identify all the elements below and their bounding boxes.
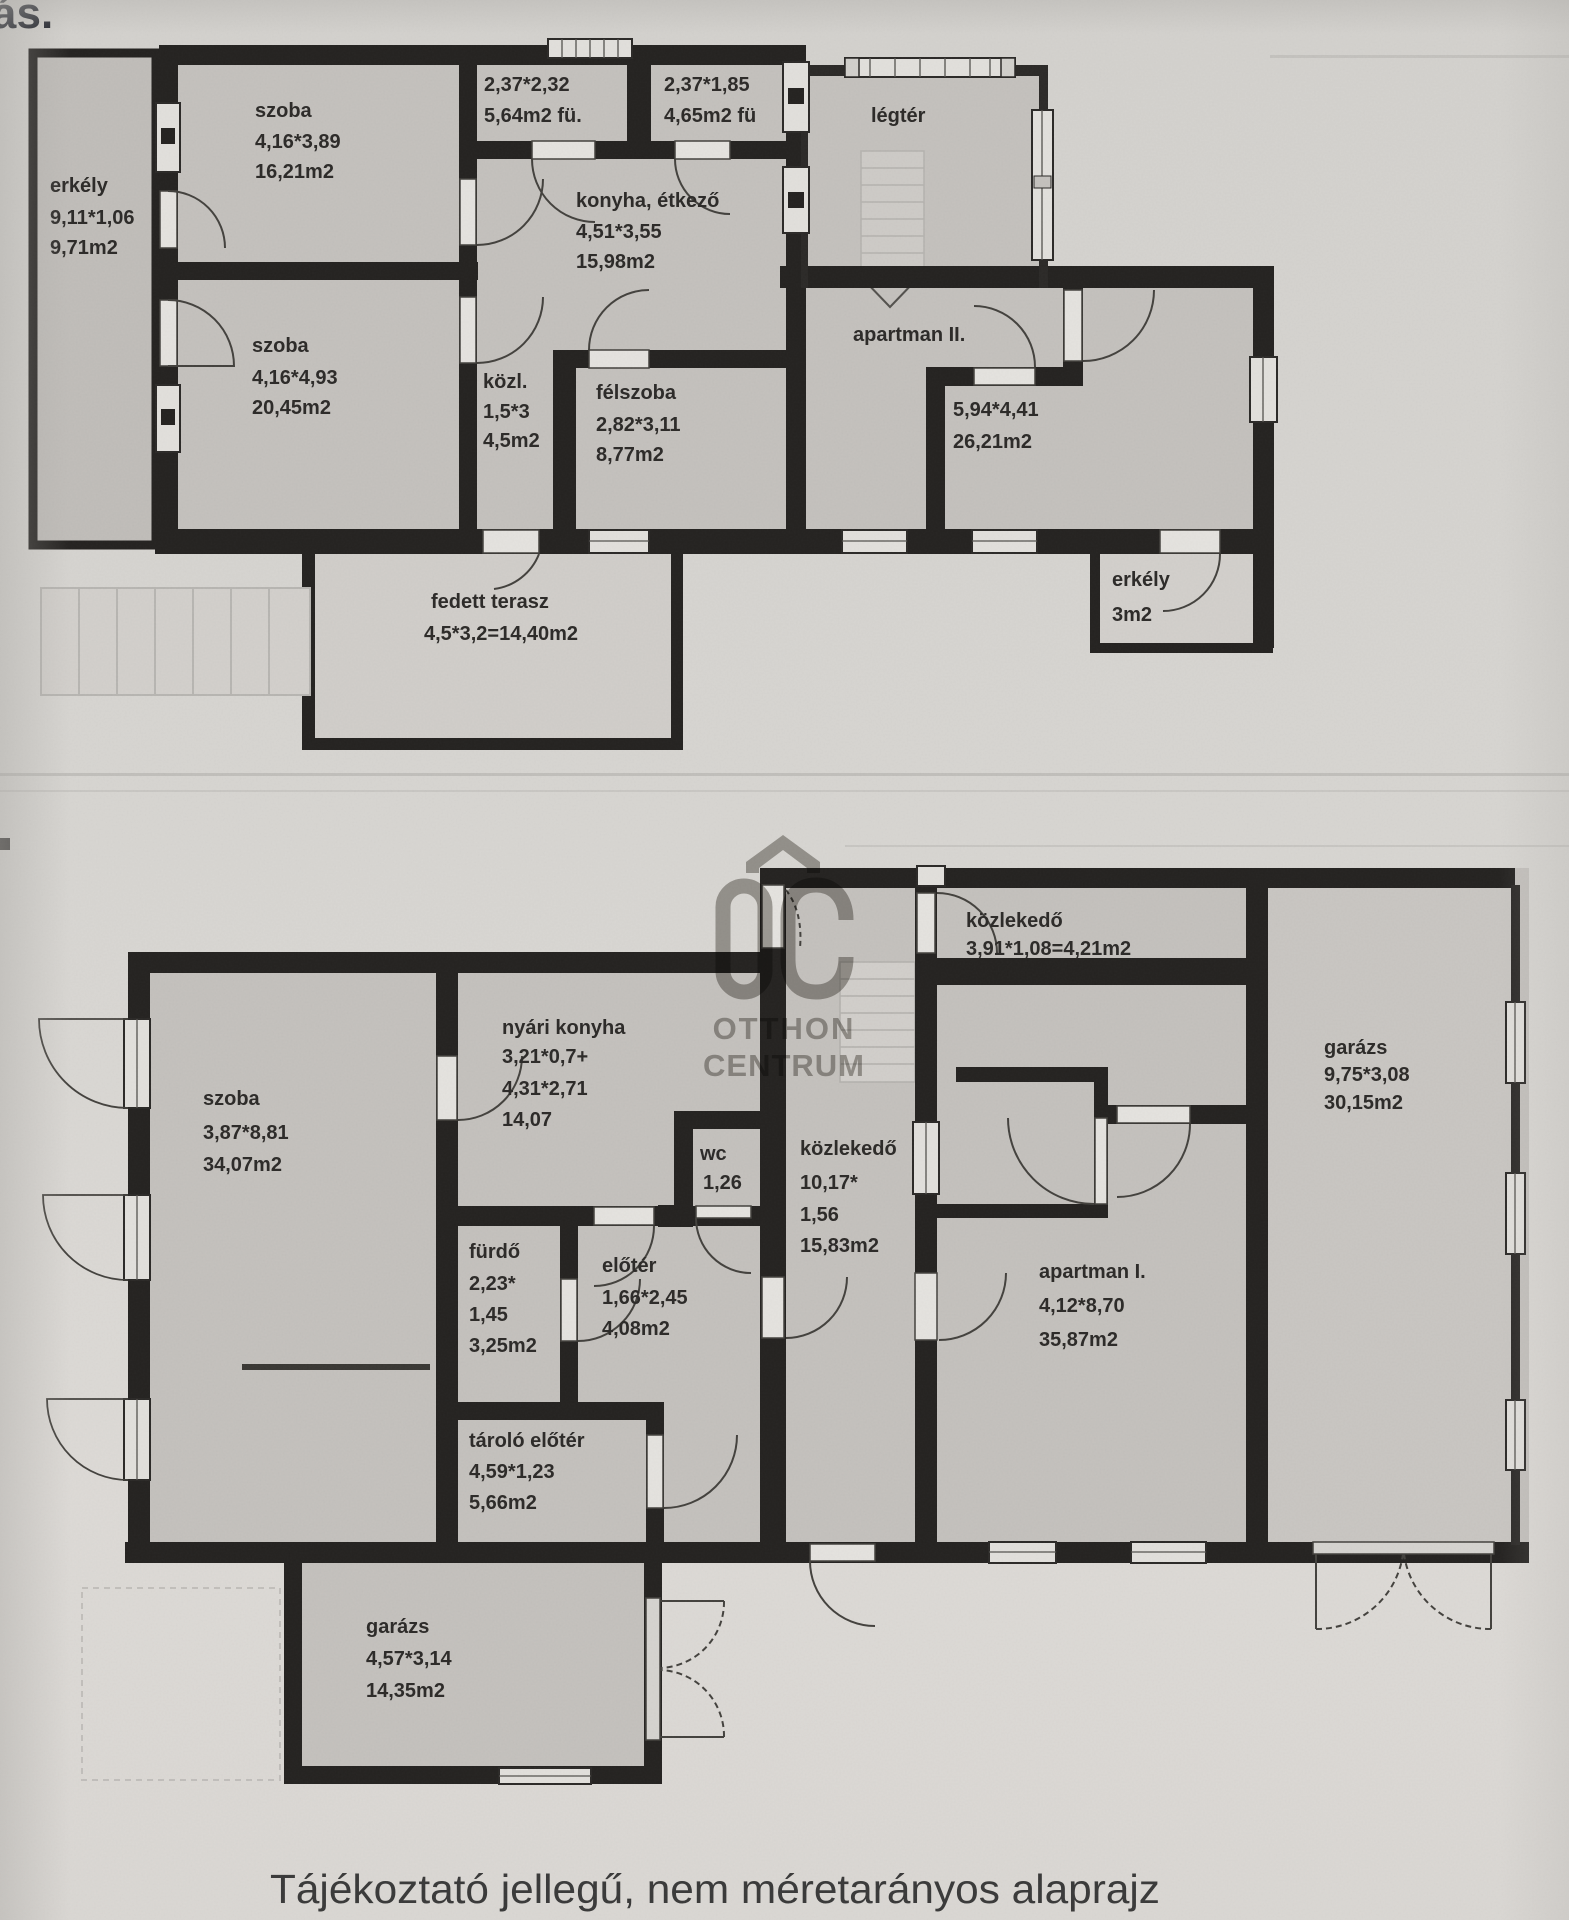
svg-text:OTTHON: OTTHON [713,1011,856,1046]
svg-text:CENTRUM: CENTRUM [703,1048,865,1083]
